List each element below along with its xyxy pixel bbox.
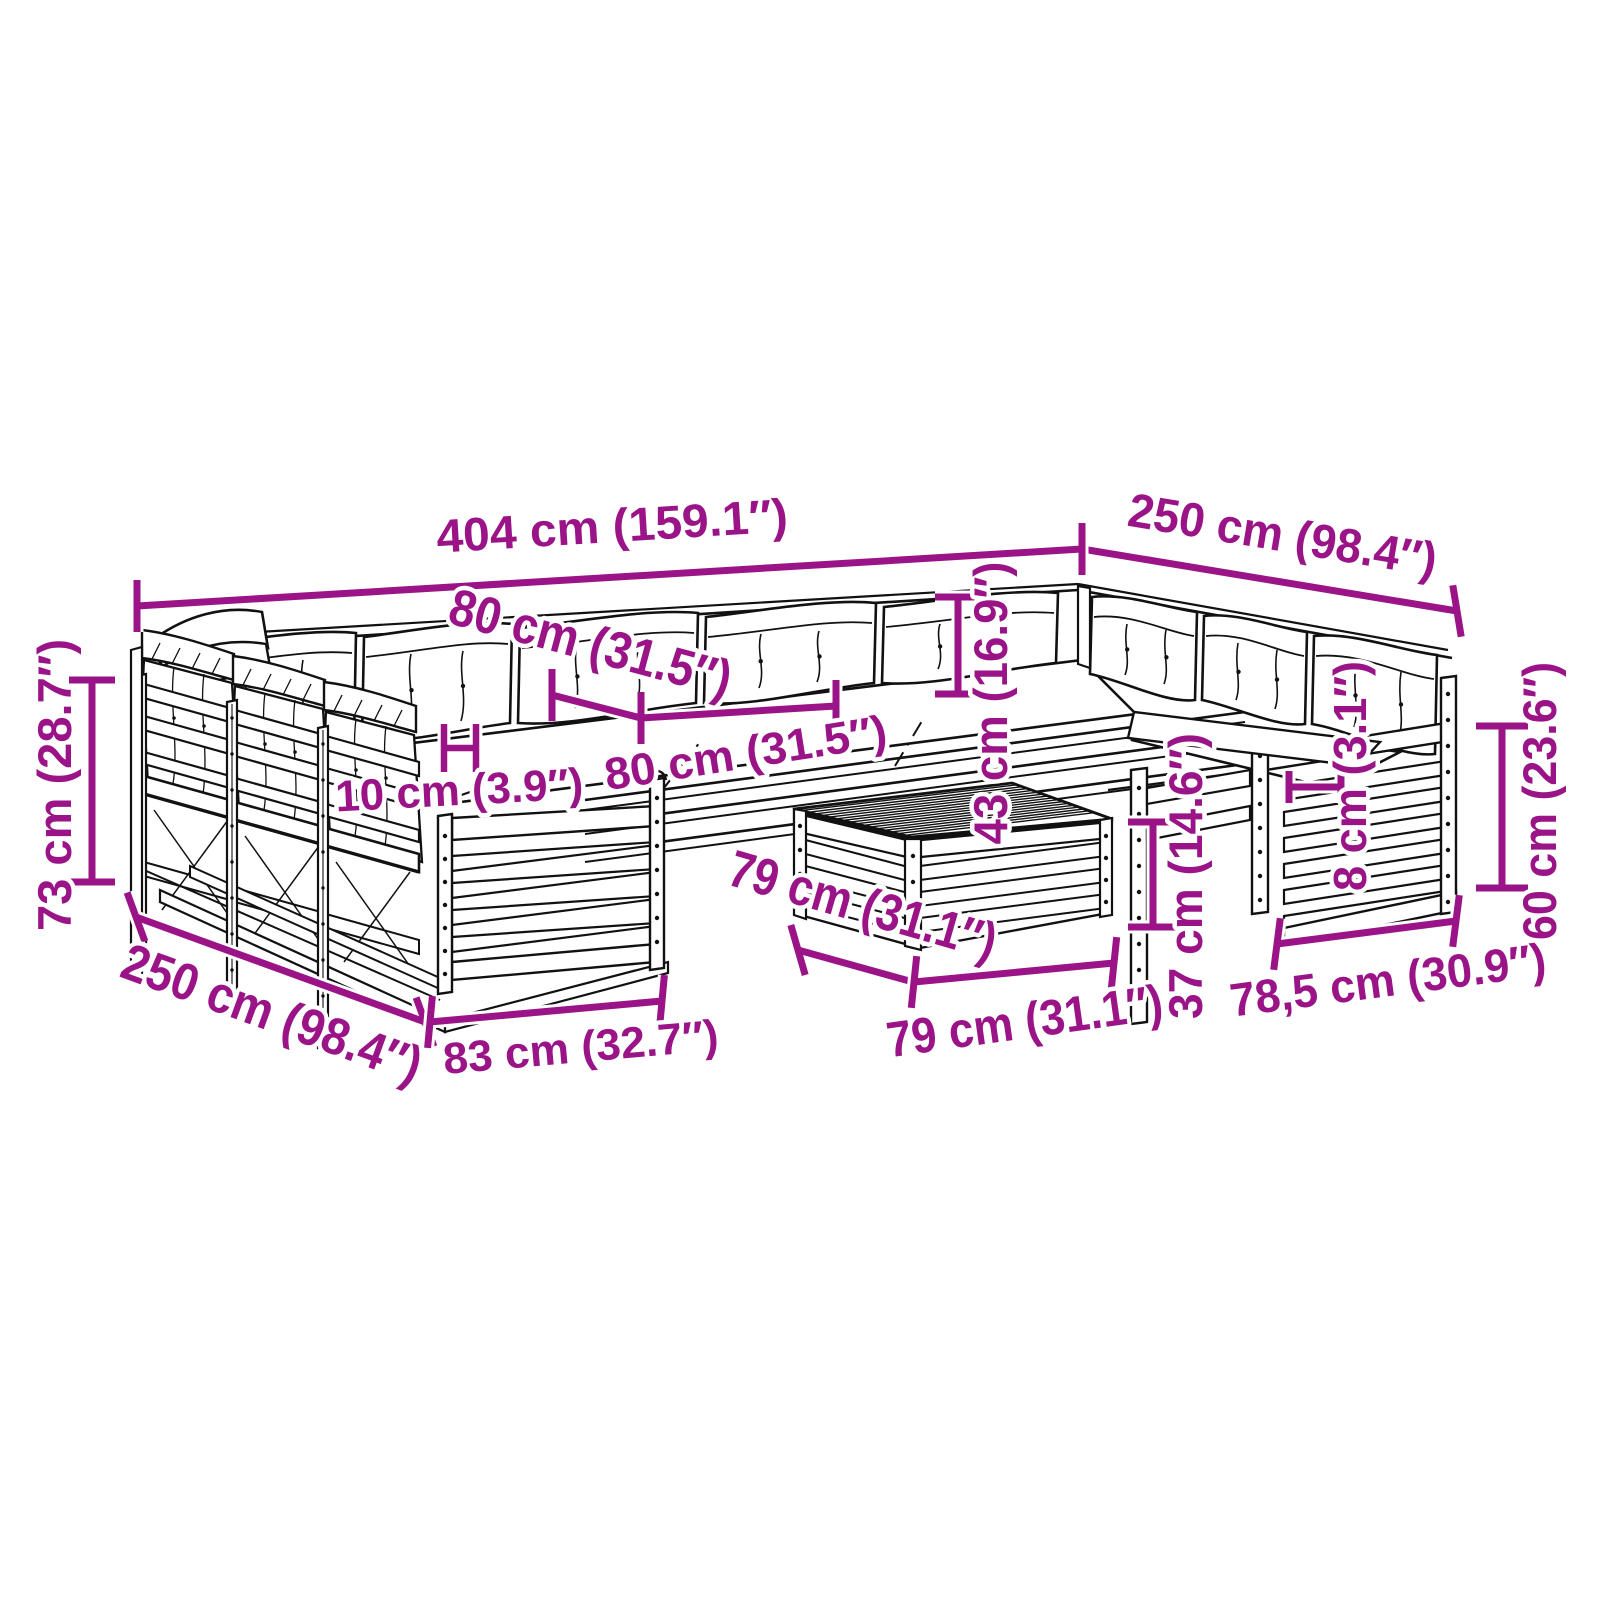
- svg-text:8 cm (3.1″): 8 cm (3.1″): [1324, 661, 1376, 891]
- svg-text:250 cm (98.4″): 250 cm (98.4″): [1124, 484, 1440, 587]
- svg-text:60 cm (23.6″): 60 cm (23.6″): [1513, 662, 1566, 940]
- svg-text:404 cm (159.1″): 404 cm (159.1″): [435, 488, 790, 562]
- svg-text:73 cm (28.7″): 73 cm (28.7″): [28, 639, 81, 931]
- svg-text:37 cm (14.6″): 37 cm (14.6″): [1159, 733, 1212, 1019]
- svg-text:79 cm (31.1″): 79 cm (31.1″): [883, 974, 1166, 1068]
- svg-text:43 cm (16.9″): 43 cm (16.9″): [964, 562, 1017, 845]
